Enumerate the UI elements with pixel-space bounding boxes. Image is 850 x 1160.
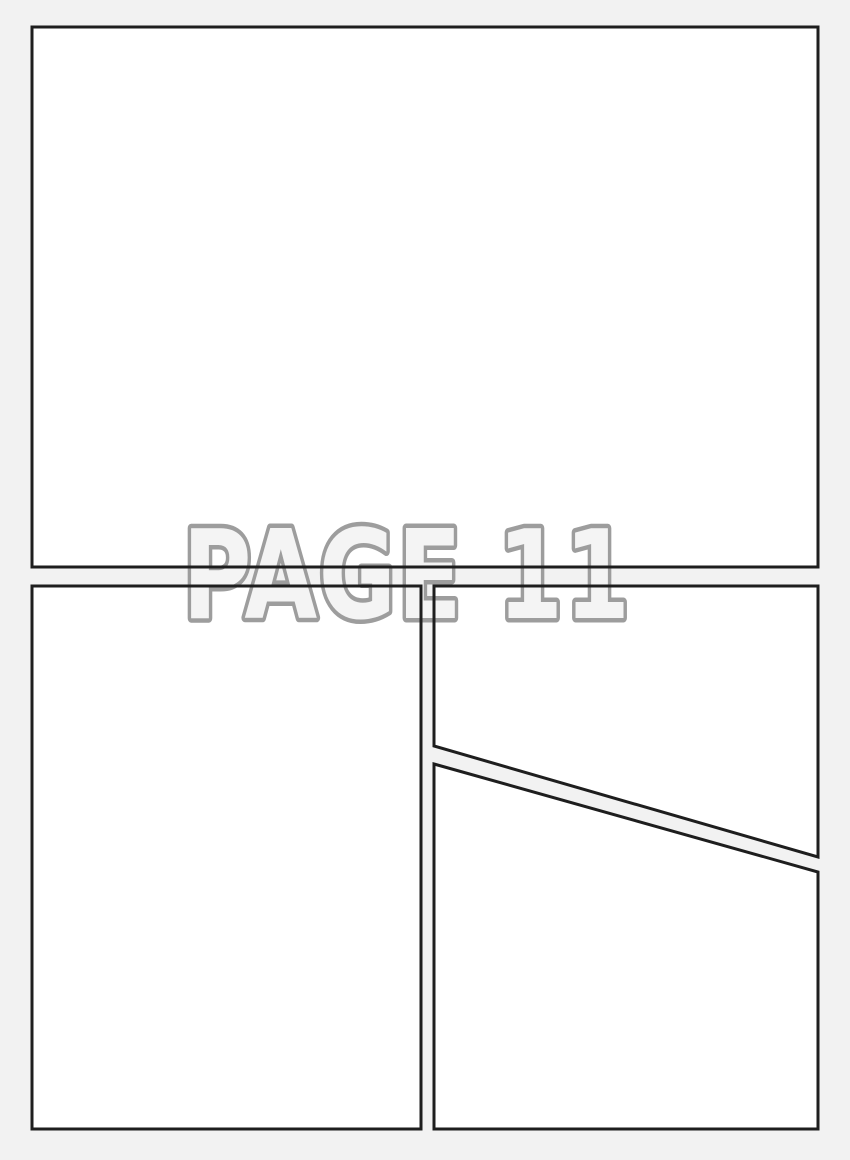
comic-page-canvas: PAGE 11 <box>0 0 850 1160</box>
comic-page-template: PAGE 11 <box>0 0 850 1160</box>
page-number-label: PAGE 11 <box>182 503 631 647</box>
panel-top-fill <box>32 27 818 567</box>
panel-bottom-left-fill <box>32 586 421 1129</box>
